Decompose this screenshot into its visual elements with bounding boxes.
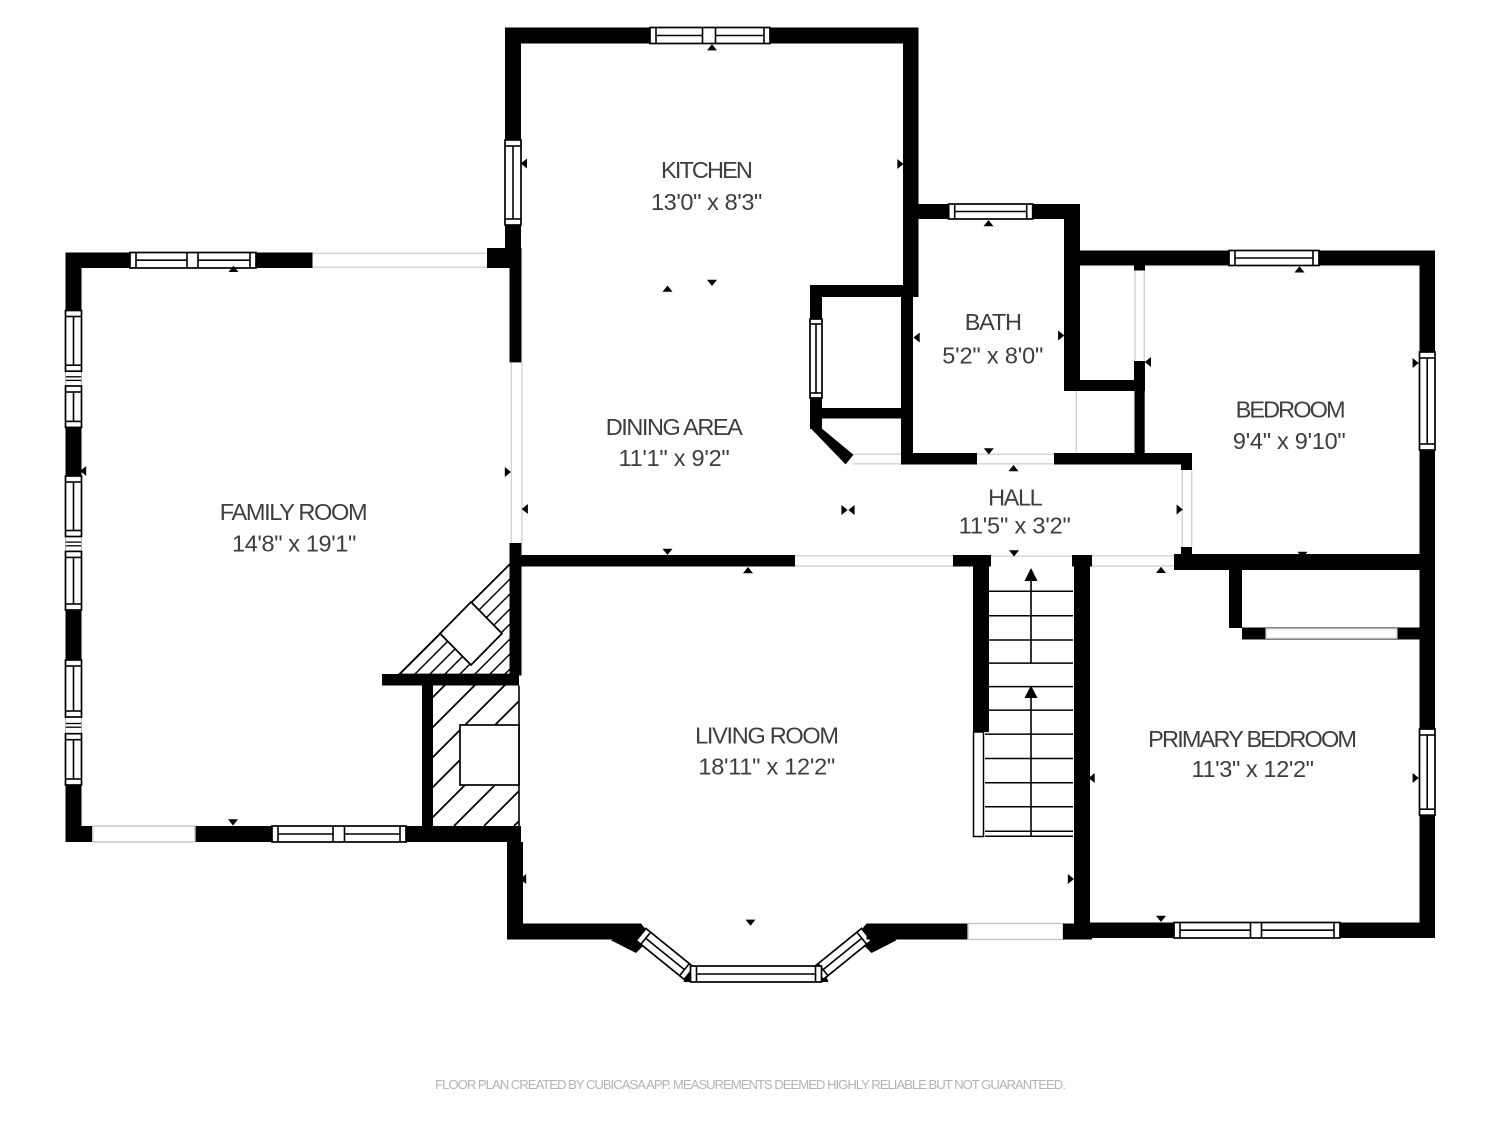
svg-text:LIVING ROOM: LIVING ROOM xyxy=(695,723,838,749)
svg-text:14'8" x 19'1": 14'8" x 19'1" xyxy=(232,531,356,557)
svg-text:5'2" x 8'0": 5'2" x 8'0" xyxy=(942,343,1043,369)
svg-text:FLOOR PLAN CREATED BY CUBICASA: FLOOR PLAN CREATED BY CUBICASA APP. MEAS… xyxy=(435,1077,1065,1092)
svg-text:13'0" x 8'3": 13'0" x 8'3" xyxy=(651,189,762,215)
svg-text:PRIMARY BEDROOM: PRIMARY BEDROOM xyxy=(1148,726,1355,752)
svg-text:BATH: BATH xyxy=(965,309,1021,335)
svg-text:9'4" x 9'10": 9'4" x 9'10" xyxy=(1233,428,1346,454)
svg-text:11'3" x 12'2": 11'3" x 12'2" xyxy=(1192,756,1314,782)
svg-text:FAMILY ROOM: FAMILY ROOM xyxy=(220,499,366,525)
svg-text:HALL: HALL xyxy=(988,485,1043,511)
svg-text:11'1" x 9'2": 11'1" x 9'2" xyxy=(619,445,730,471)
svg-text:18'11" x 12'2": 18'11" x 12'2" xyxy=(698,754,835,780)
svg-text:BEDROOM: BEDROOM xyxy=(1236,397,1344,423)
svg-text:11'5" x 3'2": 11'5" x 3'2" xyxy=(959,513,1071,539)
svg-text:KITCHEN: KITCHEN xyxy=(661,157,752,183)
svg-text:DINING AREA: DINING AREA xyxy=(606,414,743,440)
